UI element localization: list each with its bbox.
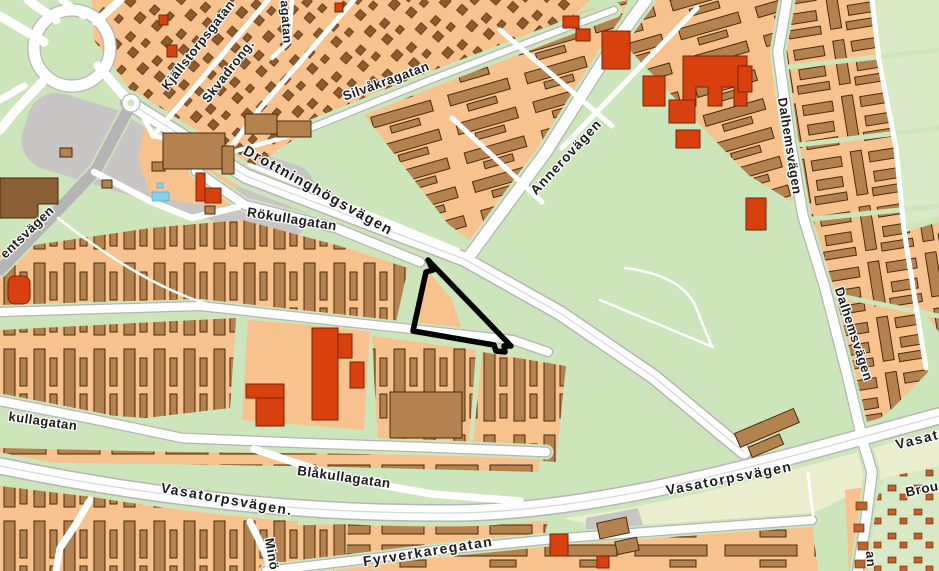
mini-roundabout (122, 94, 140, 112)
map-root[interactable]: KjällstorpsgatanSkvadrong.agatanSilvåkra… (0, 0, 939, 571)
map-canvas[interactable] (0, 0, 939, 571)
